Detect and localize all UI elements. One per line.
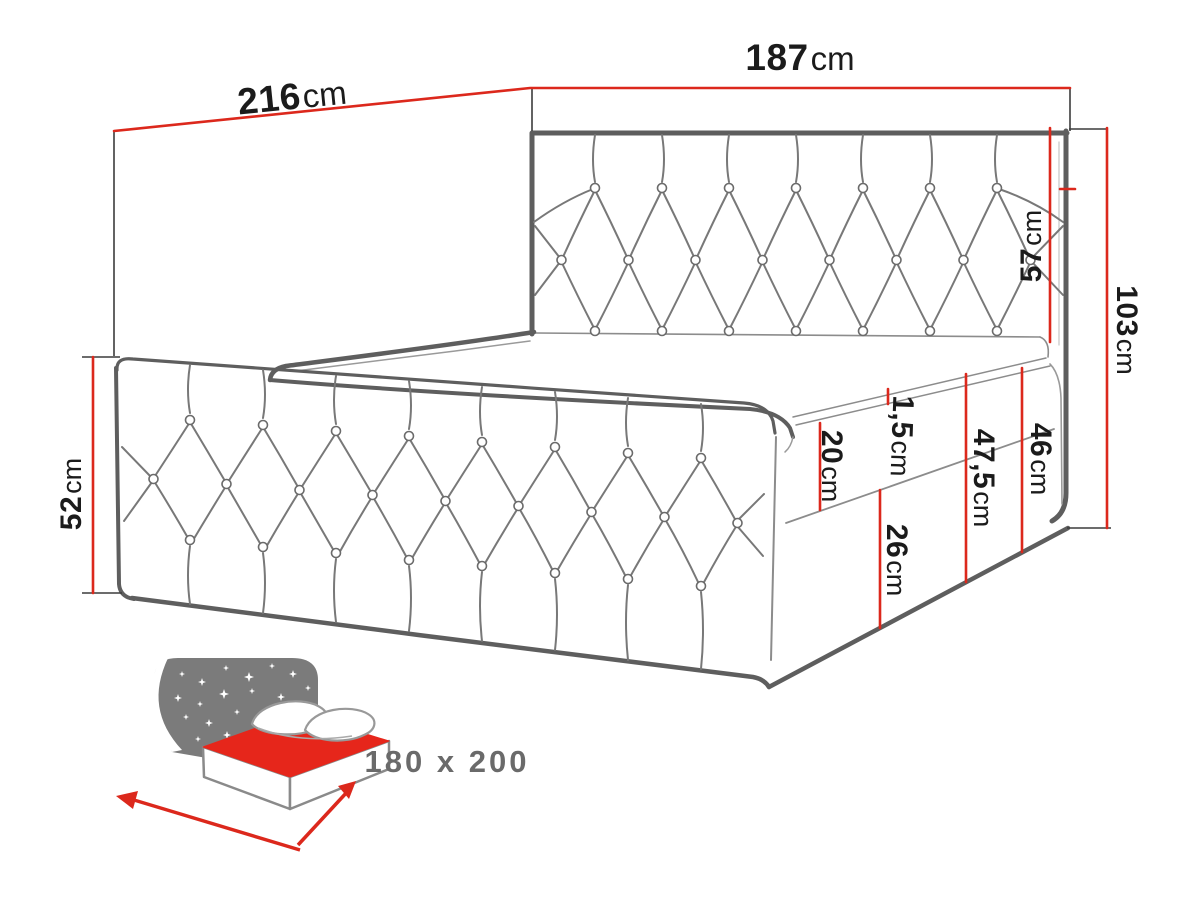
dimension-label-upper-section: 47,5cm — [966, 429, 1000, 527]
dim-value: 47,5 — [966, 429, 1000, 489]
dim-value: 57 — [1015, 248, 1049, 282]
bed-dimension-diagram: 216cm 187cm 52cm 57cm 103cm 1,5cm 20cm 2… — [0, 0, 1200, 900]
dim-unit: cm — [1110, 339, 1141, 375]
dimension-label-width: 187cm — [745, 37, 854, 79]
dim-value: 103 — [1109, 285, 1143, 337]
dim-unit: cm — [57, 458, 88, 494]
dimension-label-headboard-above: 57cm — [1015, 210, 1049, 282]
extension-lines — [82, 88, 1111, 593]
dimension-label-box-total: 46cm — [1023, 423, 1057, 495]
dim-value: 20 — [814, 430, 848, 464]
headboard-tufting-seams — [534, 135, 1063, 328]
mattress-edges — [270, 332, 1050, 452]
dimension-lines — [93, 88, 1107, 628]
base-box-outline — [116, 359, 1068, 687]
dim-unit: cm — [301, 74, 349, 116]
dim-unit: cm — [967, 491, 998, 527]
headboard-buttons — [557, 184, 1035, 336]
dimension-label-mattress: 20cm — [814, 430, 848, 502]
dimension-label-lower-box: 26cm — [879, 524, 913, 596]
bed-outline-group — [116, 131, 1068, 687]
dim-unit: cm — [884, 440, 916, 477]
dim-value: 216 — [236, 75, 303, 123]
mattress-size-label: 180 x 200 — [365, 744, 530, 780]
dim-unit: cm — [815, 466, 846, 502]
dimension-label-side-height: 52cm — [55, 458, 89, 530]
size-icon-group — [116, 658, 389, 850]
dim-unit: cm — [1017, 210, 1048, 246]
dim-value: 52 — [55, 496, 89, 530]
dim-value: 46 — [1023, 423, 1057, 457]
dim-unit: cm — [1024, 459, 1055, 495]
dim-value: 187 — [745, 37, 808, 79]
dim-value: 1,5 — [884, 395, 919, 439]
dim-unit: cm — [811, 40, 855, 78]
dimension-label-total-height: 103cm — [1109, 285, 1143, 375]
dimension-label-topper: 1,5cm — [883, 395, 920, 477]
bed-technical-drawing — [0, 0, 1200, 900]
dim-value: 26 — [879, 524, 913, 558]
dim-unit: cm — [880, 560, 911, 596]
